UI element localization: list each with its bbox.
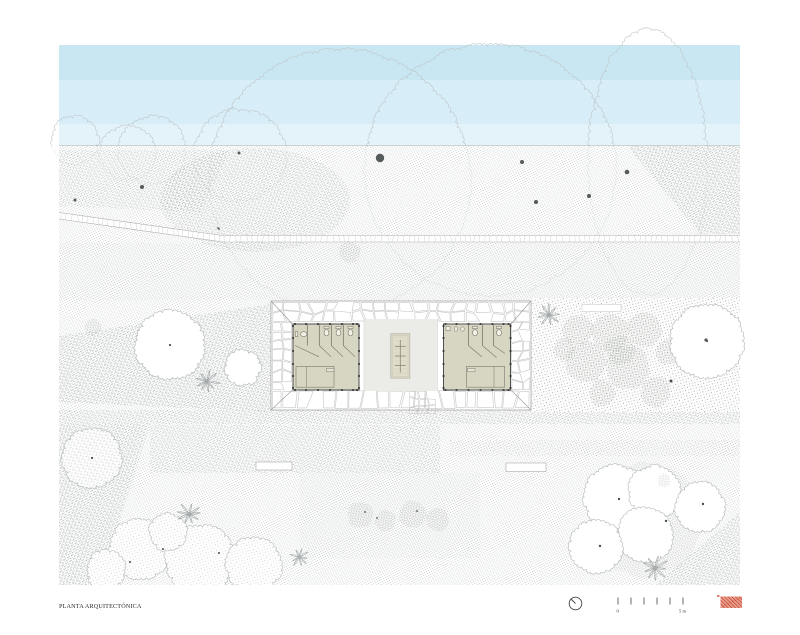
- svg-text:5 m: 5 m: [679, 609, 686, 614]
- svg-text:PLANTA ARQUITECTÓNICA: PLANTA ARQUITECTÓNICA: [59, 602, 142, 610]
